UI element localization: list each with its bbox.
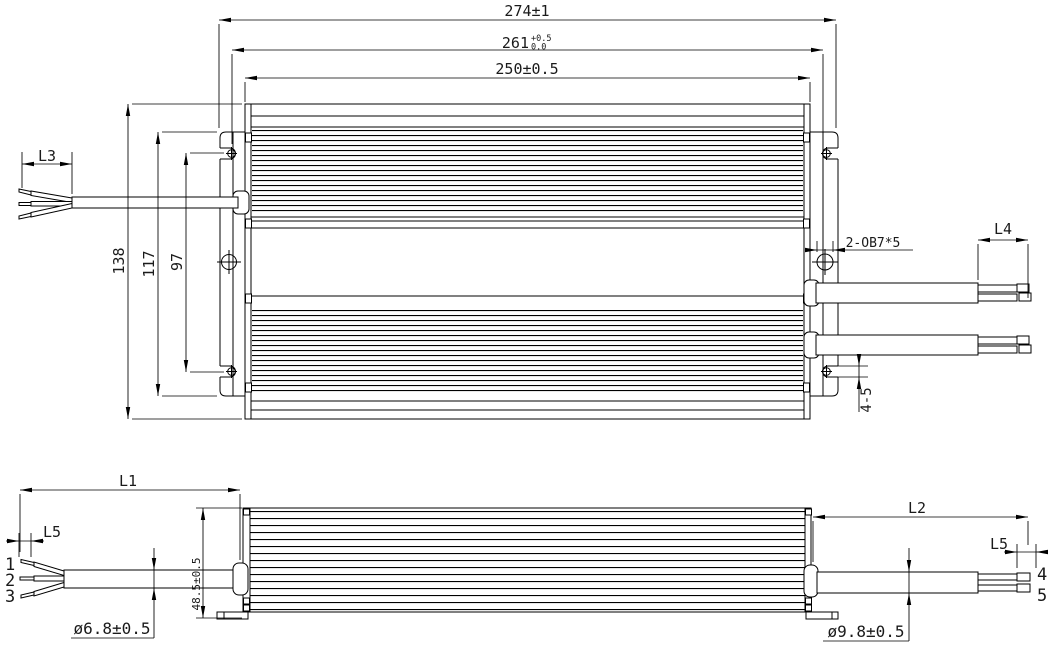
mount-foot-right	[806, 612, 838, 619]
fin-band-side	[250, 509, 805, 611]
dim-arrowhead	[126, 407, 130, 419]
wire-number-4: 4	[1037, 565, 1047, 585]
dim-input-cable-length-label: L1	[119, 472, 137, 490]
drawing-sheet: 274±1 261 +0.5 0.0 250±0.5 138 117 97 L3…	[0, 0, 1055, 649]
dim-arrowhead	[824, 18, 836, 22]
output-wire	[978, 346, 1017, 353]
output-wire	[978, 574, 1017, 580]
input-wire-tip	[19, 189, 31, 195]
dim-arrowhead	[126, 104, 130, 116]
wire-number-5: 5	[1037, 586, 1047, 606]
output-cable-1	[816, 283, 978, 303]
side-view-body	[217, 508, 838, 619]
fin-band-upper	[252, 130, 803, 213]
output-wire-tip	[1017, 584, 1030, 592]
input-cable-top	[72, 197, 238, 208]
dim-arrowhead	[184, 153, 188, 165]
output-wire-tip	[1017, 284, 1029, 292]
input-cable-side	[64, 570, 233, 588]
top-view-input-cable	[19, 189, 249, 219]
output-wire-tip	[1017, 573, 1030, 581]
top-view-body	[245, 104, 810, 419]
output-cable-2	[816, 335, 978, 355]
dim-arrowhead	[7, 539, 19, 543]
dim-mount-slot-label: 2-OB7*5	[846, 236, 901, 251]
input-wire	[34, 583, 64, 597]
dim-arrowhead	[152, 588, 156, 600]
output-wire	[978, 585, 1017, 591]
dim-arrowhead	[907, 593, 911, 605]
dim-mount-span-label: 261	[502, 34, 529, 52]
fin-band-lower	[252, 310, 803, 393]
dim-line-bracket-width	[158, 132, 217, 396]
dim-output-strip-label: L4	[994, 220, 1012, 238]
dim-arrowhead	[156, 384, 160, 396]
dim-arrowhead	[1036, 550, 1048, 554]
dim-arrowhead	[813, 515, 825, 519]
dim-arrowhead	[31, 539, 43, 543]
cable-gland-input-side	[233, 563, 248, 595]
dim-output-tip-label: L5	[990, 535, 1008, 553]
dim-arrowhead	[857, 354, 861, 366]
cable-gland-output-side	[804, 565, 818, 597]
dim-arrowhead	[798, 76, 810, 80]
dim-arrowhead	[152, 558, 156, 570]
dim-arrowhead	[245, 76, 257, 80]
wire-number-3: 3	[5, 587, 15, 607]
output-wire-tip	[1019, 293, 1031, 301]
dim-arrowhead	[20, 488, 32, 492]
dim-arrowhead	[833, 248, 845, 252]
input-wire	[34, 562, 64, 576]
dim-cable-to-slot-label: 4-5	[859, 387, 875, 412]
output-wire-tip	[1017, 336, 1029, 344]
dim-arrowhead	[907, 560, 911, 572]
dim-arrowhead	[805, 248, 817, 252]
dim-line-body-length	[245, 78, 810, 102]
output-wire	[978, 337, 1017, 344]
dim-arrowhead	[811, 48, 823, 52]
technical-drawing: 274±1 261 +0.5 0.0 250±0.5 138 117 97 L3…	[0, 0, 1055, 649]
dim-arrowhead	[184, 360, 188, 372]
top-view-left-bracket	[217, 132, 245, 396]
dim-arrowhead	[232, 48, 244, 52]
output-wire	[978, 285, 1017, 292]
dim-arrowhead	[857, 377, 861, 389]
dim-input-tip-label: L5	[43, 523, 61, 541]
output-cable-side	[817, 572, 978, 593]
dim-arrowhead	[156, 132, 160, 144]
dim-arrowhead	[978, 238, 990, 242]
dim-arrowhead	[228, 488, 240, 492]
dim-output-cable-length-label: L2	[908, 499, 926, 517]
input-wire	[34, 576, 64, 581]
dim-line-input-tip	[6, 533, 44, 557]
dim-slot-spacing-label: 97	[168, 253, 186, 271]
side-view-input-cable	[20, 560, 248, 599]
side-view	[20, 508, 1030, 619]
dim-arrowhead	[219, 18, 231, 22]
input-wire-tip	[19, 213, 31, 219]
input-wire-tip	[20, 577, 34, 580]
dim-body-length-label: 250±0.5	[495, 60, 558, 78]
dim-mount-span-tol-lower: 0.0	[531, 43, 546, 53]
input-wire-tip	[21, 560, 34, 566]
dim-bracket-width-label: 117	[140, 250, 158, 277]
dim-overall-width-label: 138	[110, 247, 128, 274]
dim-arrowhead	[201, 508, 205, 520]
output-wire	[978, 294, 1017, 301]
dim-output-diameter-label: ø9.8±0.5	[827, 622, 904, 641]
dim-arrowhead	[1016, 515, 1028, 519]
dim-arrowhead	[22, 162, 34, 166]
dim-input-diameter-label: ø6.8±0.5	[73, 619, 150, 638]
dim-arrowhead	[1016, 238, 1028, 242]
dim-arrowhead	[60, 162, 72, 166]
dim-input-strip-label: L3	[38, 147, 56, 165]
dim-body-height-label: 48.5±0.5	[190, 558, 203, 611]
output-wire-tip	[1019, 345, 1031, 353]
input-wire	[31, 191, 72, 203]
input-wire-tip	[21, 592, 34, 598]
side-view-output-cable	[804, 565, 1030, 597]
dim-overall-length-label: 274±1	[504, 2, 549, 20]
input-wire-tip	[19, 203, 31, 206]
